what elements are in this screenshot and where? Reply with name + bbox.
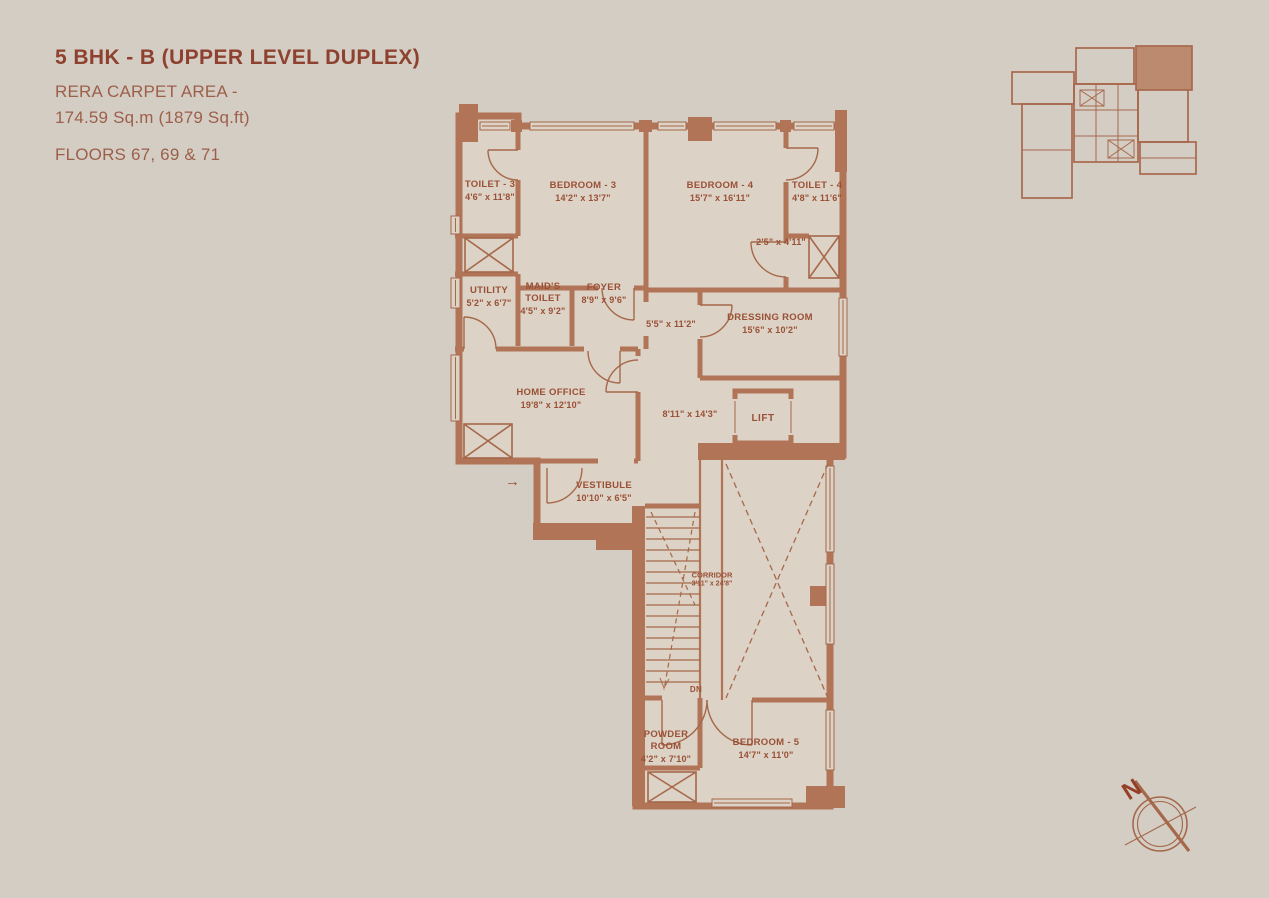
entry-arrow-icon: →	[505, 473, 520, 490]
lift-box	[731, 391, 795, 443]
plan-header: 5 BHK - B (UPPER LEVEL DUPLEX) RERA CARP…	[55, 46, 420, 165]
compass-north-label: N	[1117, 774, 1146, 806]
key-plan	[1012, 46, 1196, 198]
page-title: 5 BHK - B (UPPER LEVEL DUPLEX)	[55, 46, 420, 70]
floors-line: FLOORS 67, 69 & 71	[55, 145, 420, 165]
compass-icon: N	[1117, 774, 1196, 851]
key-plan-highlight-unit	[1136, 46, 1192, 90]
rera-carpet-area: RERA CARPET AREA - 174.59 Sq.m (1879 Sq.…	[55, 79, 420, 132]
unit-plan	[451, 104, 847, 808]
